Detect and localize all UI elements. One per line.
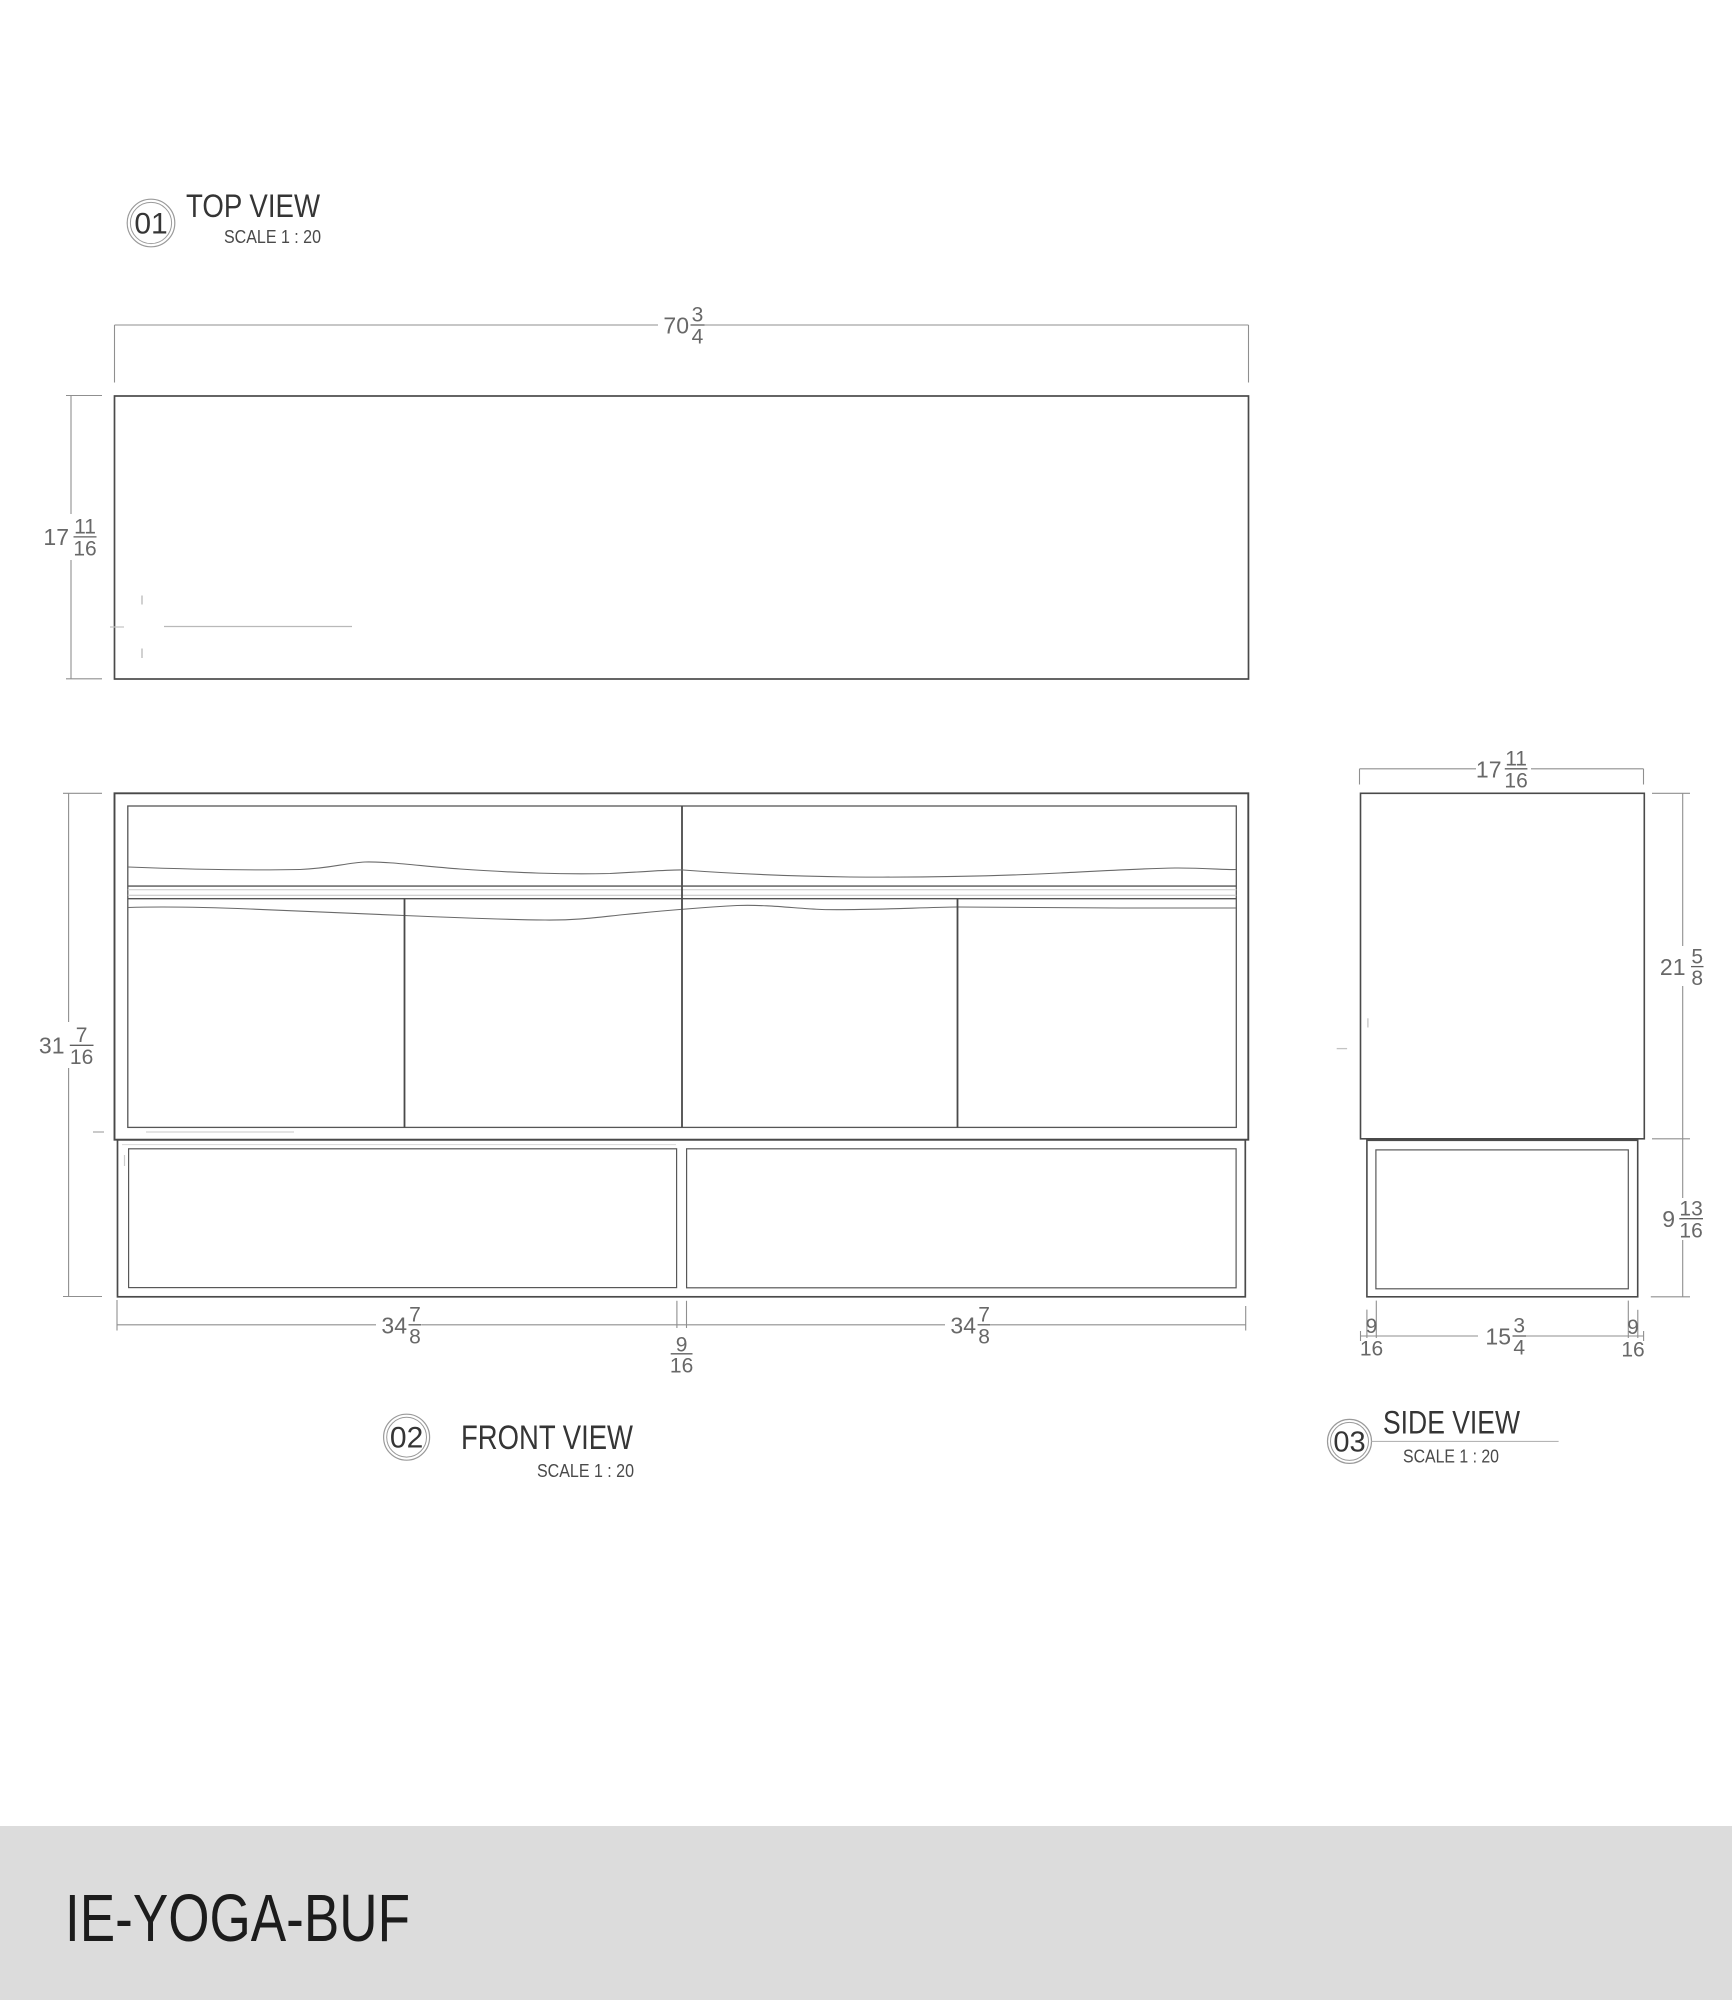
svg-text:16: 16 xyxy=(1360,1338,1383,1361)
svg-text:34: 34 xyxy=(950,1312,976,1338)
svg-text:5: 5 xyxy=(1691,945,1703,968)
svg-text:17: 17 xyxy=(1476,756,1502,782)
svg-text:7: 7 xyxy=(76,1024,88,1047)
svg-text:17: 17 xyxy=(43,524,69,550)
svg-text:31: 31 xyxy=(39,1033,65,1059)
svg-text:4: 4 xyxy=(692,326,704,349)
svg-text:SCALE 1 : 20: SCALE 1 : 20 xyxy=(224,227,321,247)
svg-text:9: 9 xyxy=(676,1334,688,1357)
svg-text:3: 3 xyxy=(1513,1315,1525,1338)
svg-text:16: 16 xyxy=(670,1355,693,1378)
svg-text:IE-YOGA-BUF: IE-YOGA-BUF xyxy=(65,1881,410,1956)
svg-text:SCALE 1 : 20: SCALE 1 : 20 xyxy=(1403,1447,1499,1467)
svg-text:7: 7 xyxy=(978,1303,990,1326)
svg-text:16: 16 xyxy=(1621,1339,1644,1362)
svg-text:21: 21 xyxy=(1660,954,1686,980)
svg-text:03: 03 xyxy=(1333,1426,1365,1458)
svg-text:11: 11 xyxy=(1505,747,1527,770)
svg-text:4: 4 xyxy=(1513,1337,1525,1360)
svg-text:FRONT VIEW: FRONT VIEW xyxy=(461,1419,633,1457)
svg-text:9: 9 xyxy=(1366,1315,1378,1338)
svg-text:16: 16 xyxy=(1679,1219,1702,1242)
svg-text:16: 16 xyxy=(1504,769,1527,792)
svg-text:15: 15 xyxy=(1485,1323,1511,1349)
svg-text:01: 01 xyxy=(134,208,167,241)
svg-text:SCALE 1 : 20: SCALE 1 : 20 xyxy=(537,1461,634,1481)
svg-text:34: 34 xyxy=(381,1312,407,1338)
svg-text:02: 02 xyxy=(390,1422,423,1455)
svg-text:8: 8 xyxy=(1691,967,1703,990)
svg-text:11: 11 xyxy=(74,515,96,538)
svg-text:16: 16 xyxy=(70,1046,93,1069)
svg-text:8: 8 xyxy=(409,1325,421,1348)
svg-text:16: 16 xyxy=(73,537,96,560)
svg-text:9: 9 xyxy=(1662,1206,1675,1232)
svg-text:13: 13 xyxy=(1679,1197,1702,1220)
svg-text:9: 9 xyxy=(1627,1316,1639,1339)
svg-text:3: 3 xyxy=(692,304,704,327)
svg-text:70: 70 xyxy=(663,313,689,339)
svg-text:8: 8 xyxy=(978,1325,990,1348)
svg-text:SIDE VIEW: SIDE VIEW xyxy=(1383,1405,1521,1441)
svg-text:TOP VIEW: TOP VIEW xyxy=(186,188,321,224)
svg-text:7: 7 xyxy=(409,1303,421,1326)
